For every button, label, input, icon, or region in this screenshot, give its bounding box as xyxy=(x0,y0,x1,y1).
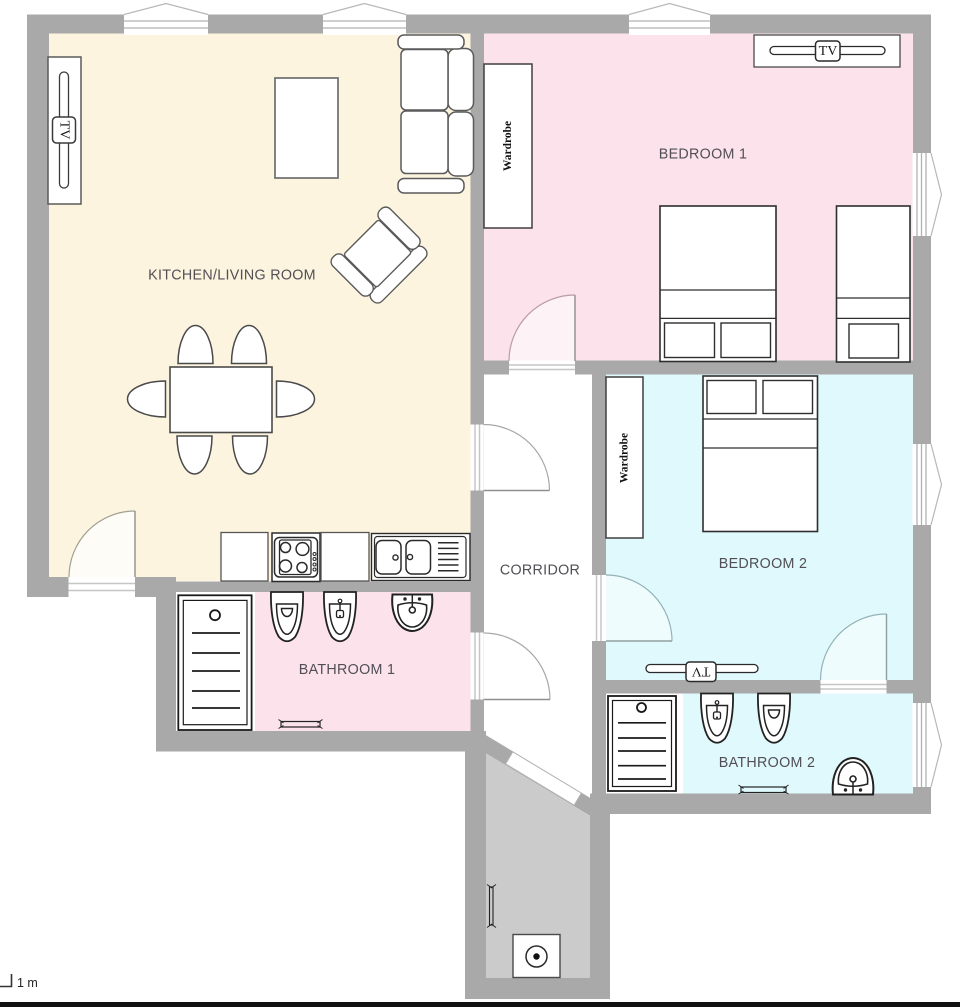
svg-text:KITCHEN/LIVING ROOM: KITCHEN/LIVING ROOM xyxy=(148,268,316,284)
svg-text:BATHROOM 1: BATHROOM 1 xyxy=(299,662,395,678)
svg-text:CORRIDOR: CORRIDOR xyxy=(500,563,580,579)
svg-text:TV: TV xyxy=(57,121,72,140)
svg-text:BEDROOM 1: BEDROOM 1 xyxy=(659,147,748,163)
svg-text:1 m: 1 m xyxy=(17,976,38,990)
svg-text:TV: TV xyxy=(692,664,711,679)
svg-text:TV: TV xyxy=(819,44,838,59)
svg-text:Wardrobe: Wardrobe xyxy=(502,121,514,171)
svg-text:BEDROOM 2: BEDROOM 2 xyxy=(719,556,808,572)
svg-text:Wardrobe: Wardrobe xyxy=(619,433,631,483)
svg-text:BATHROOM 2: BATHROOM 2 xyxy=(719,755,815,771)
